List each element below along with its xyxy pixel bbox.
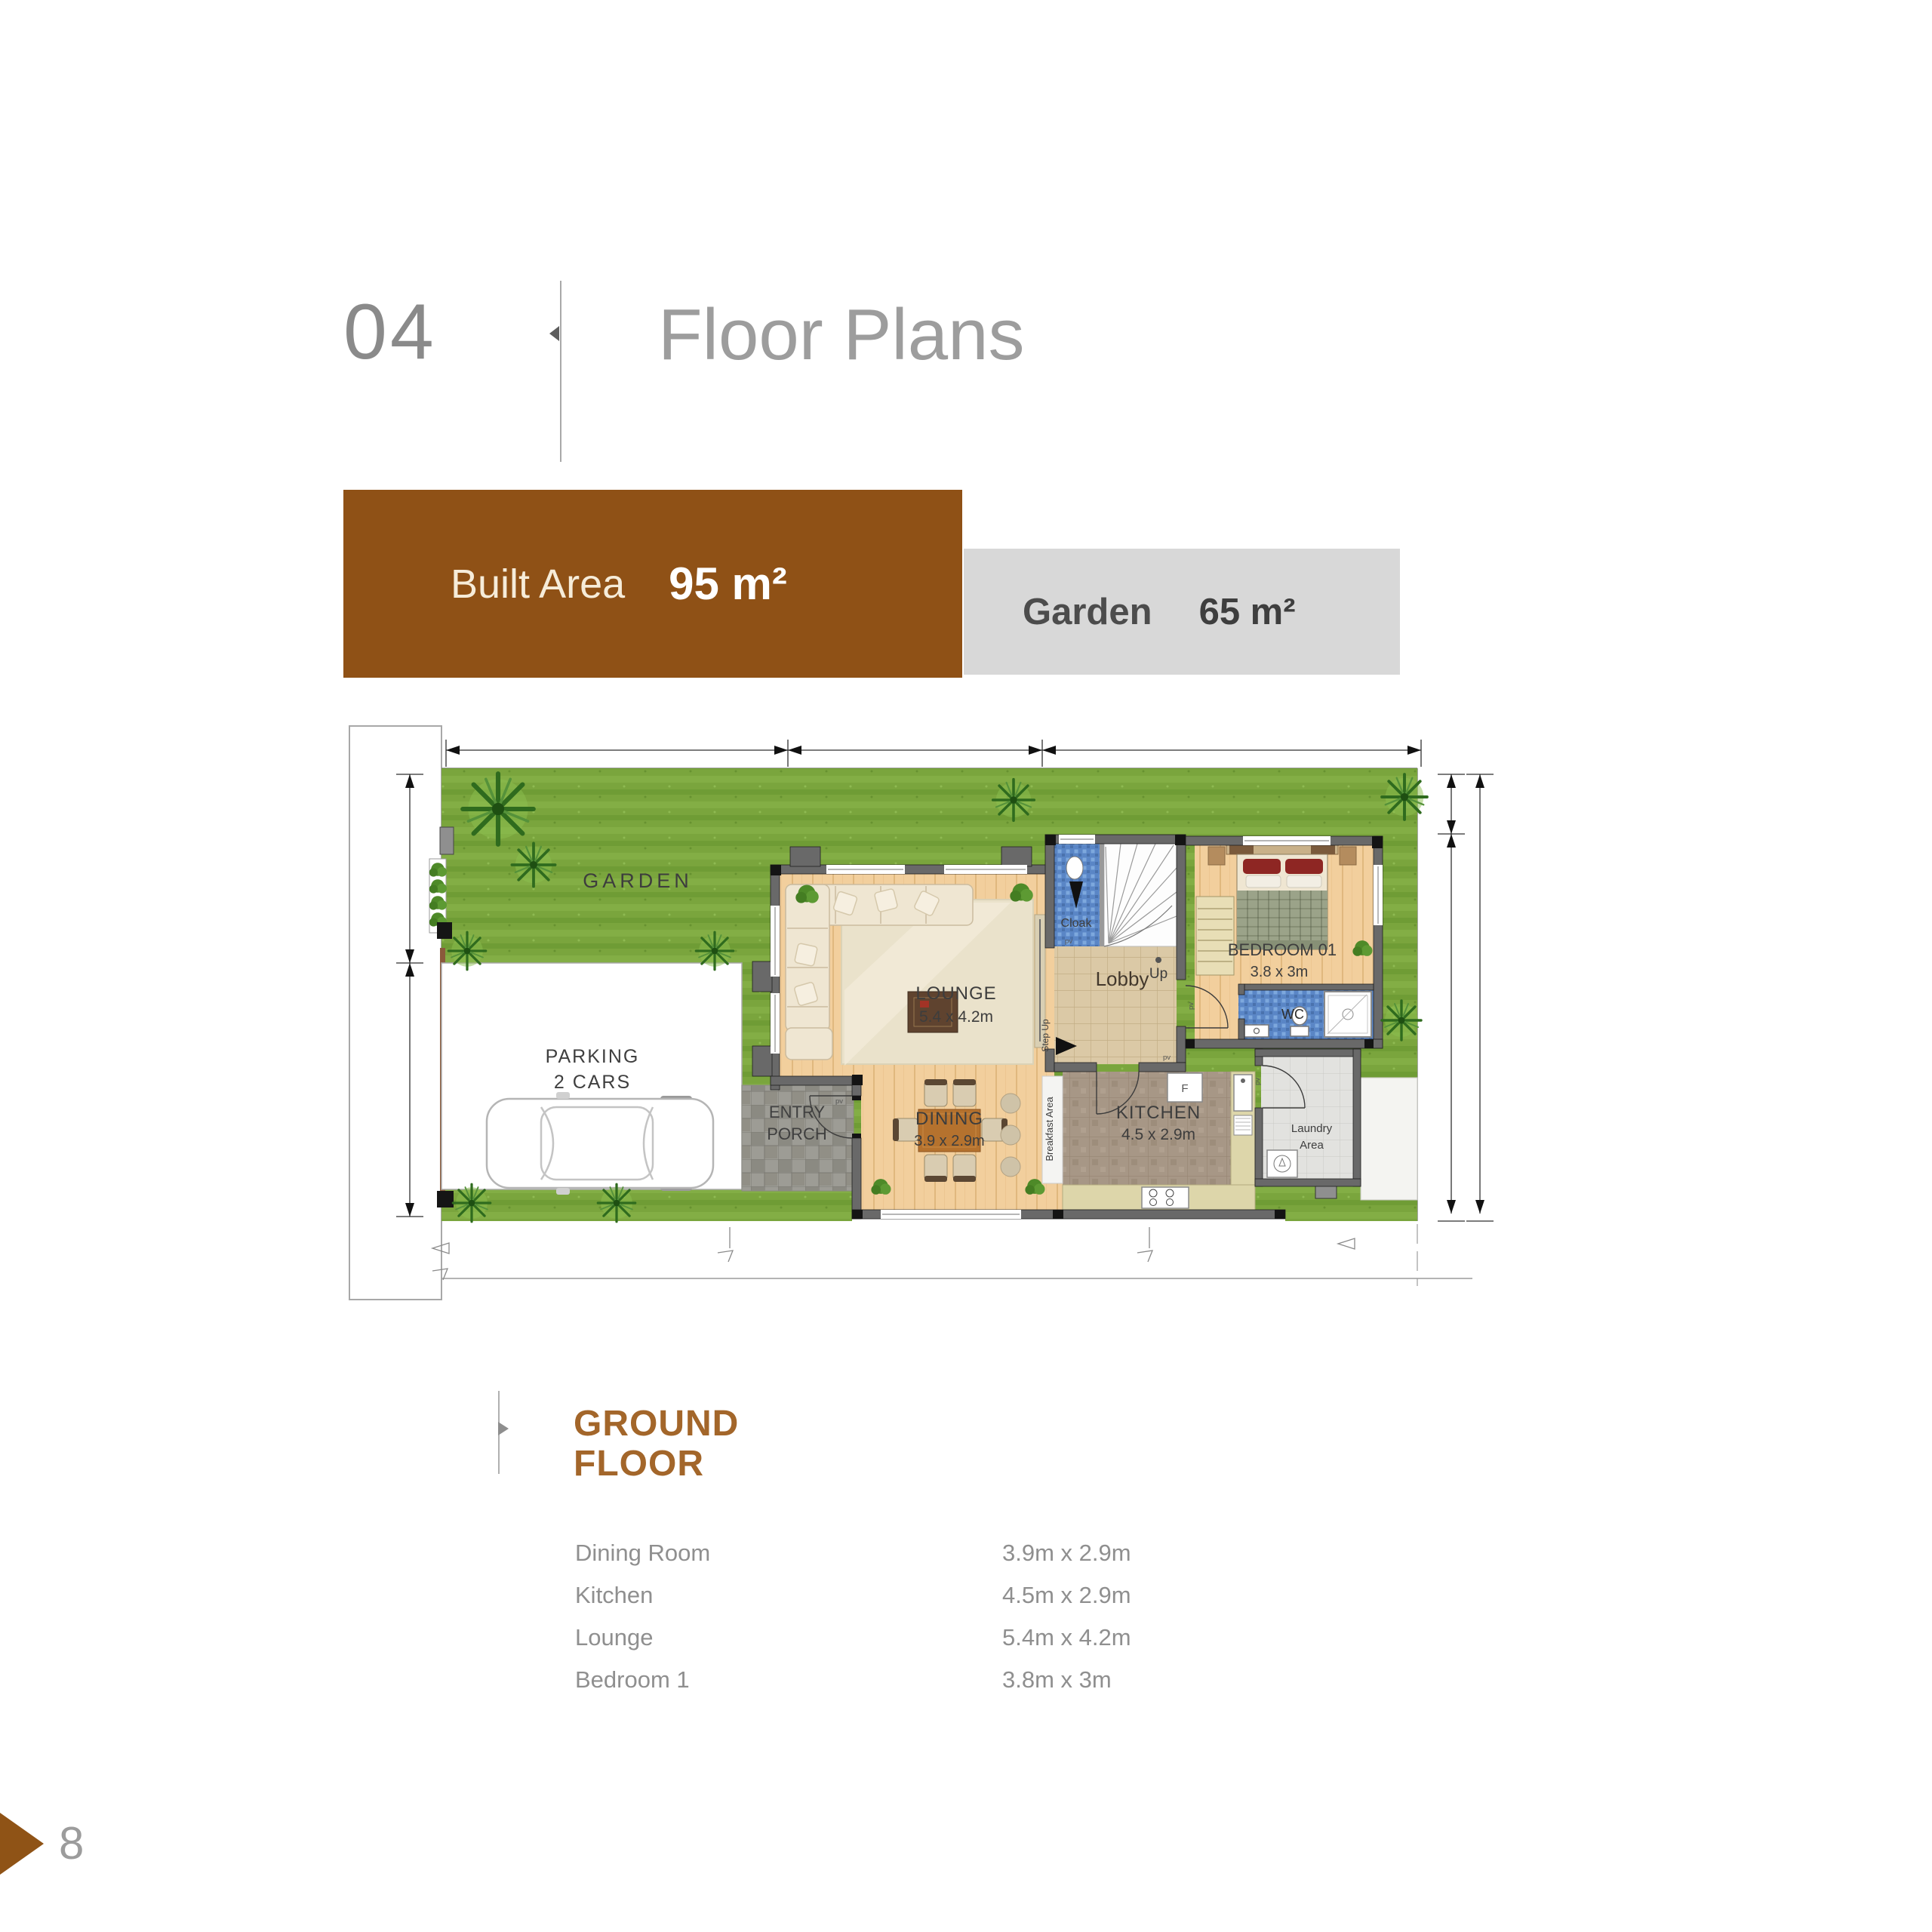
garden-label: GARDEN <box>583 869 693 892</box>
built-area-label: Built Area <box>451 561 625 608</box>
cloak-label: Cloak <box>1061 917 1093 930</box>
page-number: 8 <box>59 1817 84 1869</box>
section-number: 04 <box>343 293 437 371</box>
room-dimension-table: Dining Room 3.9m x 2.9m Kitchen 4.5m x 2… <box>575 1540 1254 1709</box>
room-name: Dining Room <box>575 1540 710 1566</box>
table-row: Kitchen 4.5m x 2.9m <box>575 1582 1254 1624</box>
floor-plan: PARKING 2 CARS ENTRY PORCH <box>343 724 1498 1321</box>
page-corner-triangle-icon <box>0 1813 44 1875</box>
room-name: Lounge <box>575 1624 653 1651</box>
lounge-label: LOUNGE <box>915 983 996 1004</box>
car-icon <box>487 1092 713 1195</box>
room-name: Kitchen <box>575 1582 653 1608</box>
stool-icon <box>1001 1094 1020 1177</box>
washing-machine-icon <box>1267 1150 1297 1177</box>
svg-text:pv: pv <box>1254 1078 1262 1085</box>
ground-floor-heading-line1: GROUND <box>574 1404 739 1444</box>
left-arrow-icon <box>549 326 559 341</box>
svg-text:pv: pv <box>835 1097 843 1106</box>
hob-icon <box>1142 1187 1189 1208</box>
side-path <box>1361 1078 1417 1200</box>
header-divider-line <box>560 281 561 462</box>
kitchen-label: KITCHEN <box>1116 1103 1201 1123</box>
up-label: Up <box>1149 966 1168 982</box>
dining-dim-label: 3.9 x 2.9m <box>914 1133 984 1149</box>
dining-label: DINING <box>915 1109 983 1129</box>
table-row: Lounge 5.4m x 4.2m <box>575 1624 1254 1666</box>
room-dimensions: 4.5m x 2.9m <box>1002 1582 1131 1609</box>
breakfast-label: Breakfast Area <box>1044 1097 1055 1161</box>
cloak-toilet-icon <box>1066 857 1083 879</box>
bedroom-dim-label: 3.8 x 3m <box>1251 964 1309 980</box>
room-dimensions: 3.9m x 2.9m <box>1002 1540 1131 1567</box>
garden-area-label: Garden <box>1023 591 1152 633</box>
garden-area-banner: Garden 65 m² <box>964 549 1400 675</box>
step-up-label: Step Up <box>1040 1019 1051 1052</box>
built-area-value: 95 m² <box>669 558 787 610</box>
bedroom-label: BEDROOM 01 <box>1228 940 1337 959</box>
parking-label: PARKING <box>546 1046 640 1067</box>
sink-icon <box>1234 1075 1252 1135</box>
table-row: Dining Room 3.9m x 2.9m <box>575 1540 1254 1582</box>
ground-floor-heading: GROUND FLOOR <box>574 1404 739 1484</box>
stair-newel <box>1155 957 1161 963</box>
svg-text:pv: pv <box>1065 937 1072 946</box>
svg-text:pv: pv <box>1163 1054 1171 1062</box>
room-dimensions: 3.8m x 3m <box>1002 1666 1112 1694</box>
right-arrow-icon <box>498 1422 509 1435</box>
fridge-label: F <box>1181 1082 1188 1095</box>
ground-floor-heading-line2: FLOOR <box>574 1444 739 1484</box>
lobby-label: Lobby <box>1096 968 1149 990</box>
garden-area-value: 65 m² <box>1199 591 1296 633</box>
closet <box>1196 897 1234 975</box>
page-title: Floor Plans <box>658 299 1025 371</box>
laundry-label: Laundry <box>1291 1122 1333 1135</box>
wc-label: WC <box>1281 1007 1304 1022</box>
laundry-label2: Area <box>1300 1139 1324 1152</box>
built-area-banner: Built Area 95 m² <box>343 490 962 678</box>
table-row: Bedroom 1 3.8m x 3m <box>575 1666 1254 1709</box>
survey-marks <box>432 1227 1355 1280</box>
parking-area: PARKING 2 CARS <box>441 963 742 1195</box>
kitchen-dim-label: 4.5 x 2.9m <box>1121 1126 1195 1143</box>
svg-text:pv: pv <box>1187 1002 1195 1010</box>
room-dimensions: 5.4m x 4.2m <box>1002 1624 1131 1651</box>
entry-porch-label2: PORCH <box>767 1124 826 1143</box>
parking-label2: 2 CARS <box>554 1072 631 1093</box>
lounge-dim-label: 5.4 x 4.2m <box>919 1008 993 1026</box>
room-name: Bedroom 1 <box>575 1666 690 1693</box>
basin-icon <box>1244 1025 1269 1037</box>
shower-icon <box>1324 992 1371 1037</box>
